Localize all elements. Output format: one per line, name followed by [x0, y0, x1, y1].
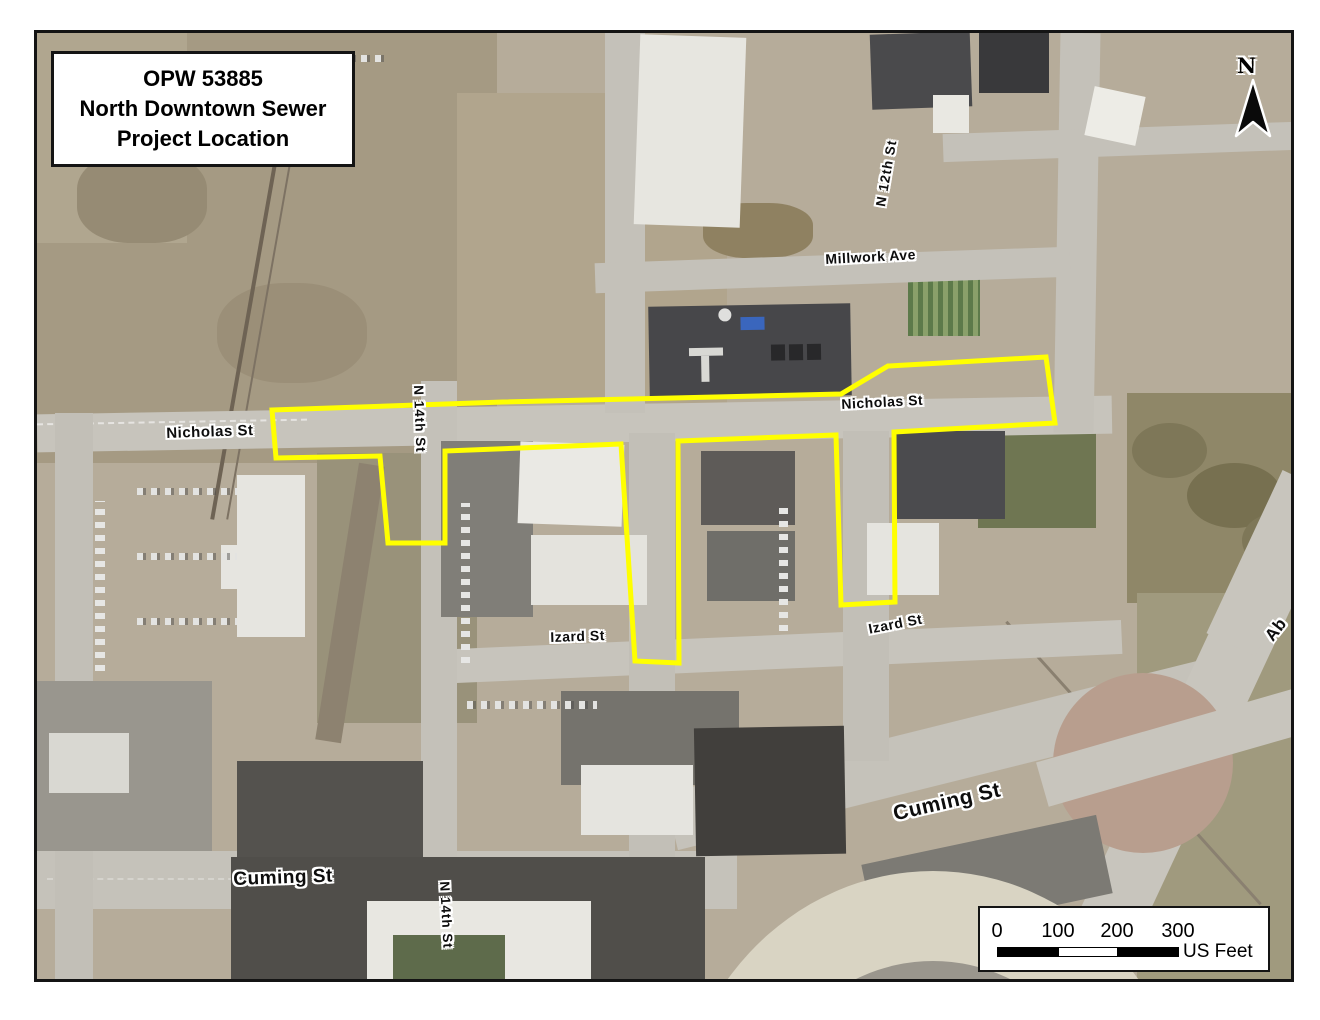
map-page: Nicholas St Nicholas St N 14th St N 14th… — [0, 0, 1320, 1020]
street-label-nicholas-west: Nicholas St — [166, 422, 254, 442]
street-label-cuming-west: Cuming St — [233, 866, 333, 891]
title-line-2: North Downtown Sewer — [54, 94, 352, 124]
scale-bar-unit: US Feet — [1183, 941, 1253, 963]
project-area-polygon — [272, 357, 1055, 663]
scale-tick-100: 100 — [1041, 920, 1074, 943]
north-arrow-icon — [1233, 78, 1273, 140]
title-line-3: Project Location — [54, 124, 352, 154]
scale-bar-segment-black — [1118, 947, 1179, 957]
scale-tick-200: 200 — [1100, 920, 1133, 943]
project-area-outline — [37, 33, 1291, 979]
title-line-1: OPW 53885 — [54, 64, 352, 94]
scale-bar-segment-white — [1058, 947, 1118, 957]
street-label-n14th-north: N 14th St — [411, 385, 428, 453]
scale-bar-segment-black — [997, 947, 1058, 957]
street-label-izard-west: Izard St — [550, 627, 605, 645]
scale-bar: 0 100 200 300 US Feet — [978, 906, 1270, 972]
map-title-box: OPW 53885 North Downtown Sewer Project L… — [51, 51, 355, 167]
aerial-map: Nicholas St Nicholas St N 14th St N 14th… — [34, 30, 1294, 982]
north-arrow-label: N — [1237, 53, 1256, 78]
scale-tick-0: 0 — [991, 920, 1002, 943]
scale-tick-300: 300 — [1161, 920, 1194, 943]
